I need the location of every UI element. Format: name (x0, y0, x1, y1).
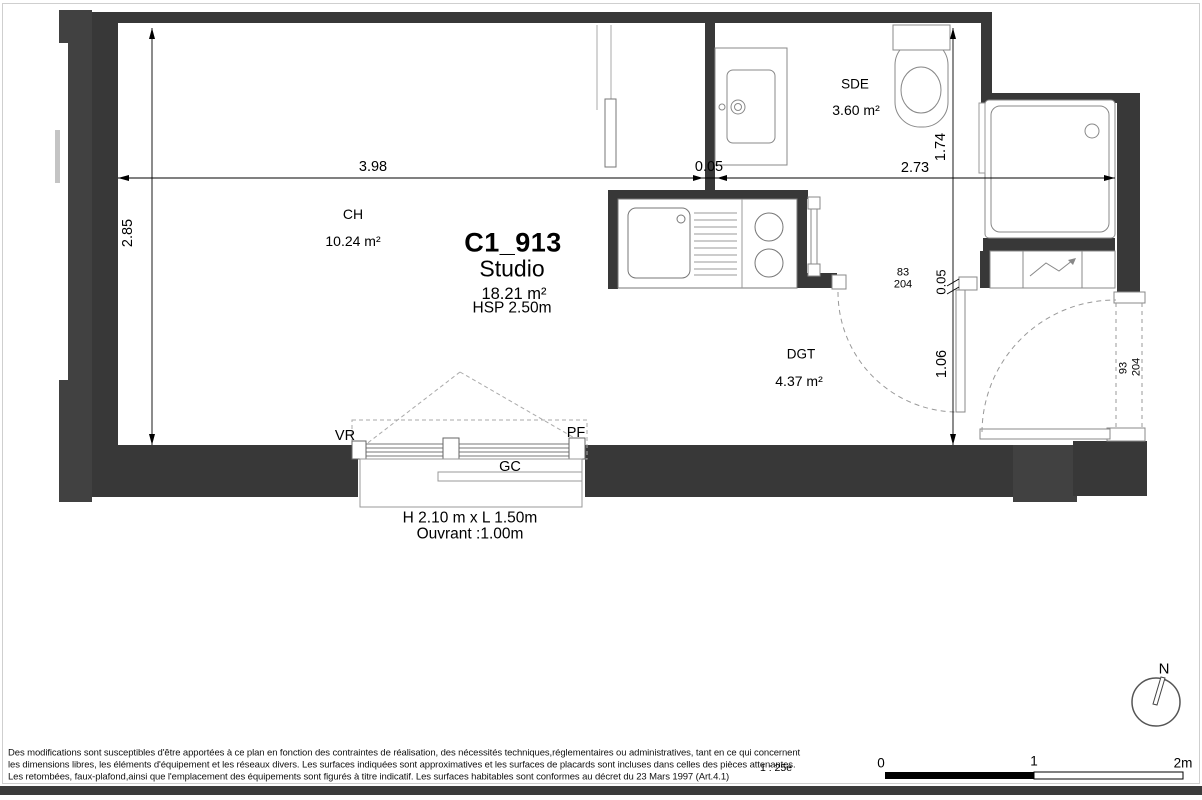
floor-plan-drawing (0, 0, 1202, 800)
entry-door-height: 204 (1132, 358, 1143, 376)
wall-left-outer (68, 43, 92, 380)
window-glazing-lines (366, 444, 569, 456)
wall-bottom-mid (585, 445, 1013, 497)
shower-door (979, 103, 985, 173)
wall-closet-left (980, 251, 990, 288)
walls (55, 10, 1147, 502)
kitchen-tap-icon (677, 215, 685, 223)
room-area-dgt: 4.37 m² (775, 374, 822, 388)
toilet-tank (893, 25, 950, 50)
wall-kitchen-left (608, 199, 618, 289)
basin-drain-inner-icon (735, 104, 742, 111)
window-opening: Ouvrant :1.00m (417, 526, 524, 542)
shower-drain-icon (1085, 124, 1099, 138)
hob-burner-bottom-icon (755, 249, 783, 277)
scale-label: 1 : 25e (760, 763, 792, 774)
wall-below-shower (983, 238, 1115, 251)
scale-bar (885, 772, 1183, 779)
scale-bar-open (1034, 772, 1183, 779)
sde-door-jamb-right (959, 277, 977, 290)
basin-control-icon (719, 104, 725, 110)
wall-bottom-right (1073, 441, 1147, 496)
entry-door-leaf (980, 429, 1110, 439)
sde-door-height: 204 (894, 280, 912, 291)
window-label-vr: VR (335, 429, 355, 444)
window-tilt-dashed-rect (352, 420, 587, 459)
room-label-sde: SDE (841, 77, 869, 91)
unit-type: Studio (479, 258, 544, 281)
wall-bottom-left (92, 445, 358, 497)
closet (990, 251, 1115, 288)
scale-tick-1: 1 (1030, 754, 1038, 768)
dim-ch-width: 3.98 (359, 160, 387, 175)
ch-sliding-door (597, 25, 616, 167)
entry-jamb-bottom (1107, 428, 1145, 441)
window-sill-box (360, 459, 582, 507)
room-area-ch: 10.24 m² (325, 234, 380, 248)
north-arrow (1132, 677, 1180, 726)
wall-right (1117, 93, 1140, 292)
disclaimer-line-3: Les retombées, faux-plafond,ainsi que l'… (8, 772, 729, 783)
scale-tick-0: 0 (877, 756, 885, 770)
dim-ch-depth: 2.85 (121, 219, 136, 247)
wall-left-sliver (55, 130, 60, 183)
sde-door-width: 83 (897, 268, 909, 279)
window-size: H 2.10 m x L 1.50m (403, 510, 538, 526)
dim-sde-width: 2.73 (901, 161, 929, 176)
kitchenette (618, 197, 820, 288)
wall-block-bottom-left (59, 380, 92, 502)
sde-door-jamb-left (832, 275, 846, 289)
room-label-ch: CH (343, 207, 363, 221)
floor-plan-sheet: CH 10.24 m² C1_913 Studio 18.21 m² HSP 2… (0, 0, 1202, 800)
entry-jamb-top (1114, 292, 1145, 303)
ch-door-panel (605, 99, 616, 167)
entry-door-swing-arc (982, 300, 1116, 432)
room-label-dgt: DGT (787, 347, 816, 361)
kitchen-slider-panel (811, 209, 817, 264)
sde-door-leaf (956, 290, 965, 412)
closet-box (990, 251, 1115, 288)
window-label-pf: PF (567, 426, 586, 441)
dim-partition: 0.05 (695, 160, 723, 175)
kitchen-slider-cap-top (808, 197, 820, 209)
wall-jog-vertical (981, 23, 992, 99)
window-post-mid (443, 438, 459, 459)
doors (832, 275, 1145, 441)
room-area-sde: 3.60 m² (832, 103, 879, 117)
disclaimer-line-2: les dimensions libres, les éléments d'éq… (8, 760, 795, 771)
hob-burner-top-icon (755, 213, 783, 241)
unit-ceiling-height: HSP 2.50m (473, 300, 552, 316)
footer-band (0, 786, 1202, 795)
wall-bottom-mid2 (1013, 445, 1077, 502)
window-label-gc: GC (499, 460, 521, 475)
kitchen-slider-cap-bottom (808, 264, 820, 276)
north-label: N (1159, 662, 1170, 677)
wall-kitchen-right (797, 199, 807, 275)
north-needle-icon (1153, 677, 1165, 705)
disclaimer-line-1: Des modifications sont susceptibles d'êt… (8, 748, 800, 759)
toilet-seat (901, 67, 941, 113)
dim-closet-depth: 0.05 (935, 269, 948, 294)
unit-title: C1_913 (464, 230, 562, 257)
scale-tick-2m: 2m (1174, 756, 1193, 770)
wall-kitchen-top (608, 190, 808, 199)
window-swing-right (460, 372, 578, 440)
window-assembly (352, 372, 587, 507)
wall-top (92, 12, 992, 23)
dim-sde-depth: 1.74 (934, 133, 949, 161)
entry-door-width: 93 (1119, 362, 1130, 374)
dim-entry-depth: 1.06 (935, 350, 950, 378)
scale-bar-solid (885, 772, 1034, 779)
wall-left-inner (92, 14, 118, 445)
window-post-right (569, 438, 585, 459)
wall-block-top-left (59, 10, 92, 43)
